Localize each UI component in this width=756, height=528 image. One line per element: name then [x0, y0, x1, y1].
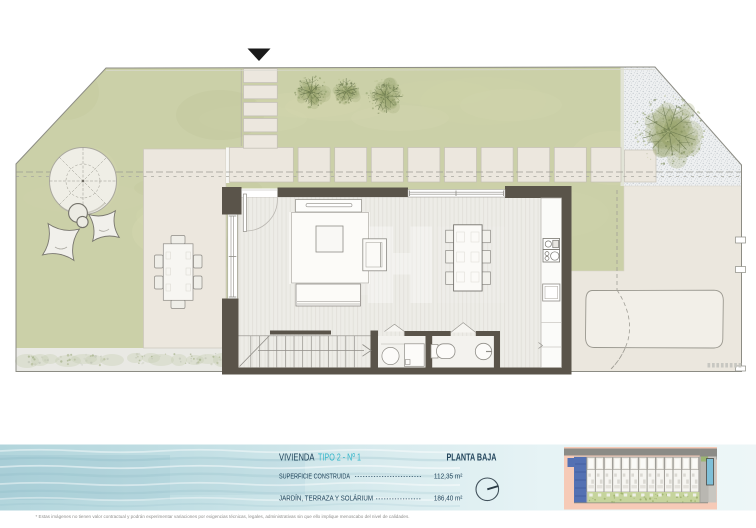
- svg-text:186,40 m²: 186,40 m²: [434, 494, 463, 503]
- svg-text:JARDÍN, TERRAZA Y SOLÁRIUM: JARDÍN, TERRAZA Y SOLÁRIUM: [279, 494, 373, 503]
- svg-text:TIPO 2 - Nº 1: TIPO 2 - Nº 1: [318, 452, 361, 463]
- svg-text:PLANTA BAJA: PLANTA BAJA: [447, 453, 498, 464]
- svg-text:* Estas imágenes no tienen val: * Estas imágenes no tienen valor contrac…: [36, 514, 410, 519]
- svg-text:112,35 m²: 112,35 m²: [434, 471, 463, 480]
- svg-text:VIVIENDA: VIVIENDA: [279, 452, 315, 463]
- svg-text:SUPERFICIE CONSTRUIDA: SUPERFICIE CONSTRUIDA: [279, 471, 350, 480]
